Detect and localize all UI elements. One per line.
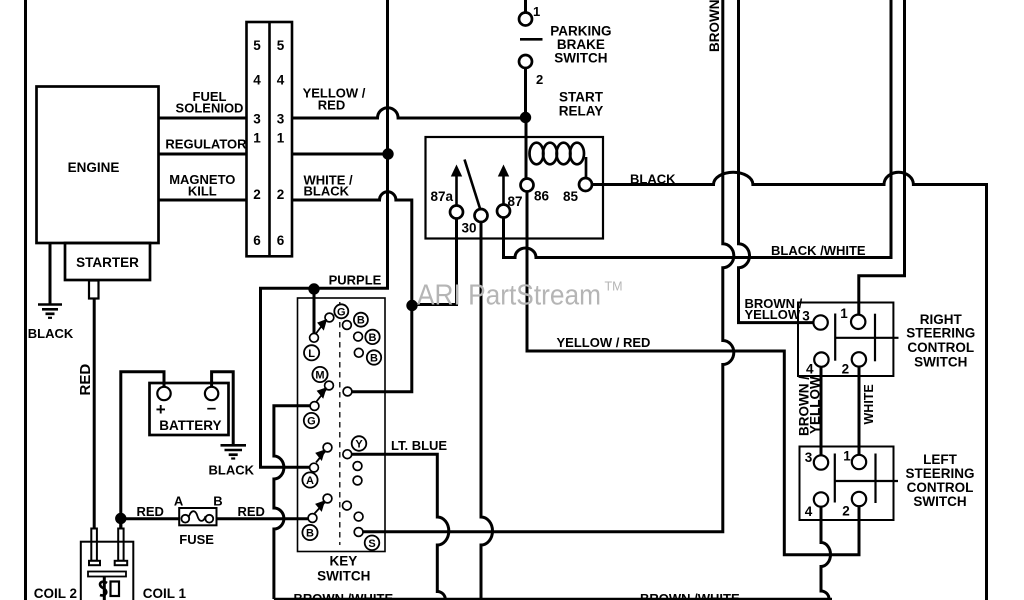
svg-text:ENGINE: ENGINE <box>68 160 120 175</box>
svg-text:BRAKE: BRAKE <box>557 37 605 52</box>
svg-text:BLACK: BLACK <box>28 326 74 341</box>
svg-text:RED: RED <box>137 504 164 519</box>
svg-text:SOLENIOD: SOLENIOD <box>176 101 244 116</box>
svg-text:1: 1 <box>277 131 285 146</box>
svg-text:A: A <box>306 475 314 487</box>
svg-text:RED: RED <box>318 97 345 112</box>
svg-text:3: 3 <box>802 309 810 324</box>
svg-text:85: 85 <box>563 189 579 204</box>
svg-text:LT. BLUE: LT. BLUE <box>391 438 447 453</box>
svg-text:2: 2 <box>277 187 285 202</box>
svg-text:B: B <box>213 493 222 508</box>
svg-text:SWITCH: SWITCH <box>554 51 607 66</box>
svg-text:CONTROL: CONTROL <box>907 340 974 355</box>
svg-text:SWITCH: SWITCH <box>914 354 967 369</box>
svg-text:+: + <box>156 400 166 419</box>
svg-text:SWITCH: SWITCH <box>913 494 966 509</box>
svg-text:L: L <box>308 348 315 360</box>
svg-text:86: 86 <box>534 189 550 204</box>
svg-text:1: 1 <box>843 449 851 464</box>
svg-text:87a: 87a <box>431 189 454 204</box>
svg-text:STARTER: STARTER <box>76 255 139 270</box>
svg-text:2: 2 <box>842 362 850 377</box>
svg-text:BLACK /WHITE: BLACK /WHITE <box>771 243 866 258</box>
svg-text:YELLOW: YELLOW <box>808 376 823 434</box>
svg-text:ARI PartStream: ARI PartStream <box>417 280 601 312</box>
svg-text:4: 4 <box>253 73 261 88</box>
svg-text:TM: TM <box>605 280 623 294</box>
svg-text:LEFT: LEFT <box>923 452 957 467</box>
svg-text:KILL: KILL <box>188 183 217 198</box>
svg-text:1: 1 <box>533 4 540 19</box>
svg-text:3: 3 <box>805 450 813 465</box>
svg-text:–: – <box>207 398 216 417</box>
svg-text:RED: RED <box>77 364 94 396</box>
svg-text:Y: Y <box>355 439 363 451</box>
svg-text:BATTERY: BATTERY <box>159 418 221 433</box>
svg-text:6: 6 <box>253 233 261 248</box>
svg-text:3: 3 <box>277 111 285 126</box>
svg-text:COIL 1: COIL 1 <box>143 586 187 600</box>
svg-text:COIL 2: COIL 2 <box>34 586 77 600</box>
svg-text:S: S <box>368 538 375 550</box>
svg-text:STEERING: STEERING <box>905 466 974 481</box>
svg-text:BLACK: BLACK <box>209 463 255 478</box>
svg-text:KEY: KEY <box>330 554 358 569</box>
svg-text:M: M <box>315 370 324 382</box>
svg-text:YELLOW / RED: YELLOW / RED <box>557 335 651 350</box>
svg-text:STEERING: STEERING <box>906 326 975 341</box>
svg-text:87: 87 <box>508 194 523 209</box>
svg-text:1: 1 <box>840 306 848 321</box>
svg-text:2: 2 <box>536 72 543 87</box>
svg-text:1: 1 <box>253 131 261 146</box>
svg-text:A: A <box>174 493 184 508</box>
svg-text:6: 6 <box>277 233 285 248</box>
svg-text:30: 30 <box>462 221 477 236</box>
svg-text:BLACK: BLACK <box>304 183 350 198</box>
svg-text:5: 5 <box>277 38 285 53</box>
svg-text:FUSE: FUSE <box>179 532 214 547</box>
svg-text:WHITE: WHITE <box>862 384 876 424</box>
svg-text:2: 2 <box>842 504 850 519</box>
svg-text:4: 4 <box>806 362 814 377</box>
svg-text:3: 3 <box>253 111 261 126</box>
svg-text:B: B <box>306 528 314 540</box>
svg-text:5: 5 <box>253 38 261 53</box>
svg-text:BROWN: BROWN <box>707 0 722 52</box>
svg-text:PURPLE: PURPLE <box>329 273 382 288</box>
svg-text:BROWN /WHITE: BROWN /WHITE <box>294 591 394 600</box>
svg-text:B: B <box>357 315 365 327</box>
svg-text:RED: RED <box>238 504 265 519</box>
svg-text:SWITCH: SWITCH <box>317 568 370 583</box>
svg-text:B: B <box>369 332 377 344</box>
svg-text:BLACK: BLACK <box>630 172 676 187</box>
svg-text:BROWN /WHITE: BROWN /WHITE <box>640 591 740 600</box>
svg-text:4: 4 <box>277 73 285 88</box>
svg-text:G: G <box>307 416 316 428</box>
svg-text:REGULATOR: REGULATOR <box>165 136 247 151</box>
svg-text:2: 2 <box>253 187 261 202</box>
svg-text:4: 4 <box>805 504 813 519</box>
svg-text:B: B <box>370 353 378 365</box>
svg-text:START: START <box>559 90 604 105</box>
svg-text:YELLOW: YELLOW <box>745 307 801 322</box>
svg-text:G: G <box>337 306 346 318</box>
svg-text:RELAY: RELAY <box>559 104 604 119</box>
svg-text:CONTROL: CONTROL <box>907 480 974 495</box>
